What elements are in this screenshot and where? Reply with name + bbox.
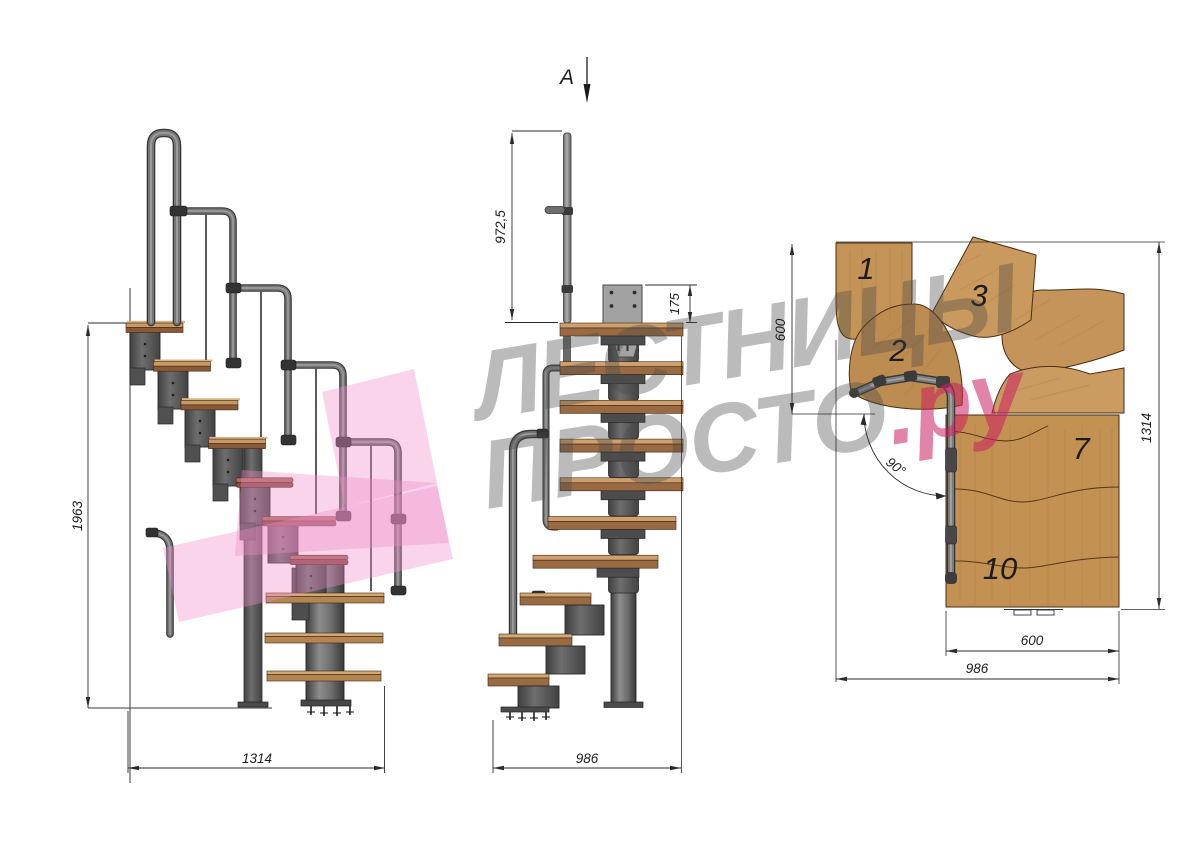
svg-text:972,5: 972,5	[493, 210, 508, 244]
svg-text:7: 7	[1072, 431, 1091, 466]
svg-text:1963: 1963	[70, 500, 85, 531]
svg-text:1314: 1314	[242, 751, 272, 766]
svg-text:600: 600	[1021, 633, 1044, 648]
svg-text:175: 175	[667, 292, 682, 314]
svg-text:1314: 1314	[1139, 413, 1154, 443]
svg-text:10: 10	[983, 551, 1017, 586]
svg-text:600: 600	[773, 318, 788, 341]
svg-text:986: 986	[576, 751, 599, 766]
svg-text:986: 986	[966, 661, 989, 676]
svg-text:A: A	[558, 66, 574, 89]
